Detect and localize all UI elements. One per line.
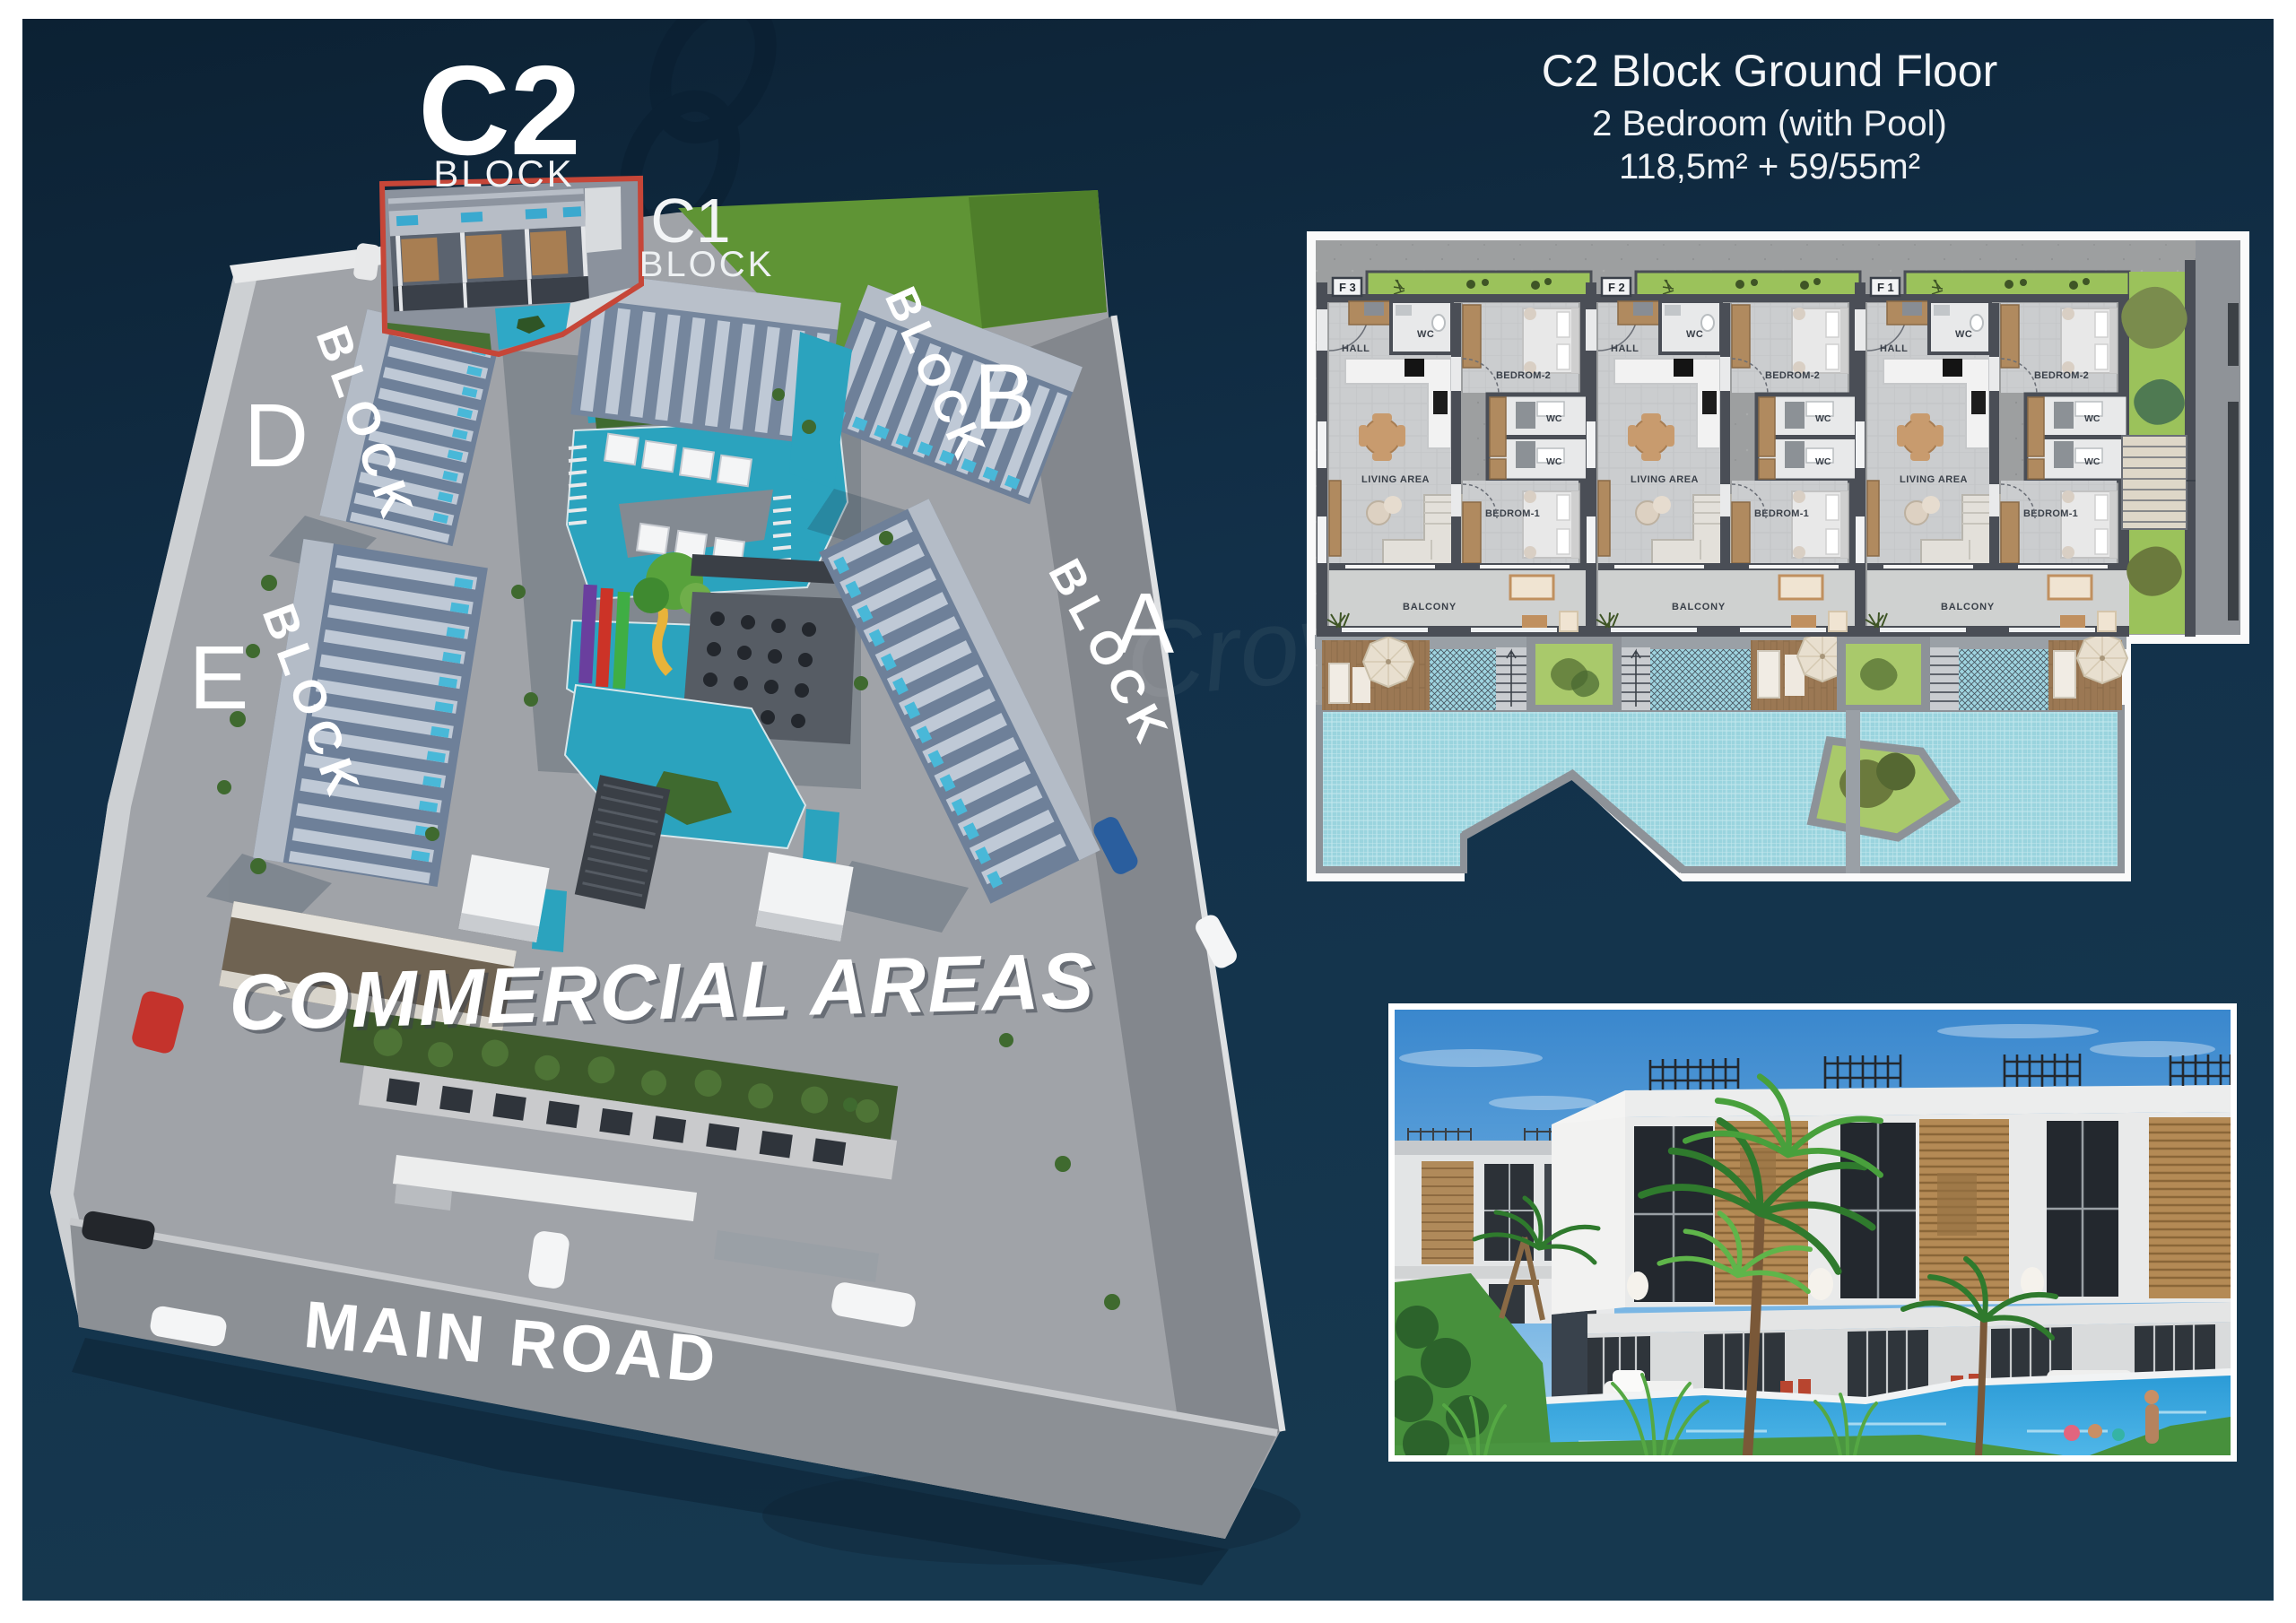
svg-text:LIVING AREA: LIVING AREA: [1361, 474, 1430, 485]
svg-text:D: D: [244, 386, 309, 486]
svg-text:F 3: F 3: [1339, 281, 1356, 294]
svg-text:BLOCK: BLOCK: [639, 245, 775, 284]
svg-text:F 2: F 2: [1608, 281, 1625, 294]
svg-text:2 Bedroom (with Pool): 2 Bedroom (with Pool): [1592, 104, 1947, 143]
svg-text:F 1: F 1: [1877, 281, 1894, 294]
svg-text:E: E: [189, 628, 249, 728]
svg-text:B: B: [973, 345, 1035, 449]
svg-text:HALL: HALL: [1342, 343, 1370, 354]
svg-text:WC: WC: [1546, 456, 1562, 467]
svg-text:WC: WC: [1417, 329, 1434, 340]
svg-text:BEDROM-2: BEDROM-2: [1496, 370, 1551, 381]
svg-text:WC: WC: [1546, 413, 1562, 424]
svg-text:118,5m² + 59/55m²: 118,5m² + 59/55m²: [1619, 147, 1920, 187]
svg-text:C2 Block Ground Floor: C2 Block Ground Floor: [1542, 46, 1998, 96]
svg-text:BEDROM-1: BEDROM-1: [1485, 508, 1540, 519]
svg-text:BLOCK: BLOCK: [433, 152, 574, 195]
svg-text:A: A: [1117, 576, 1174, 672]
svg-text:BALCONY: BALCONY: [1403, 602, 1457, 612]
